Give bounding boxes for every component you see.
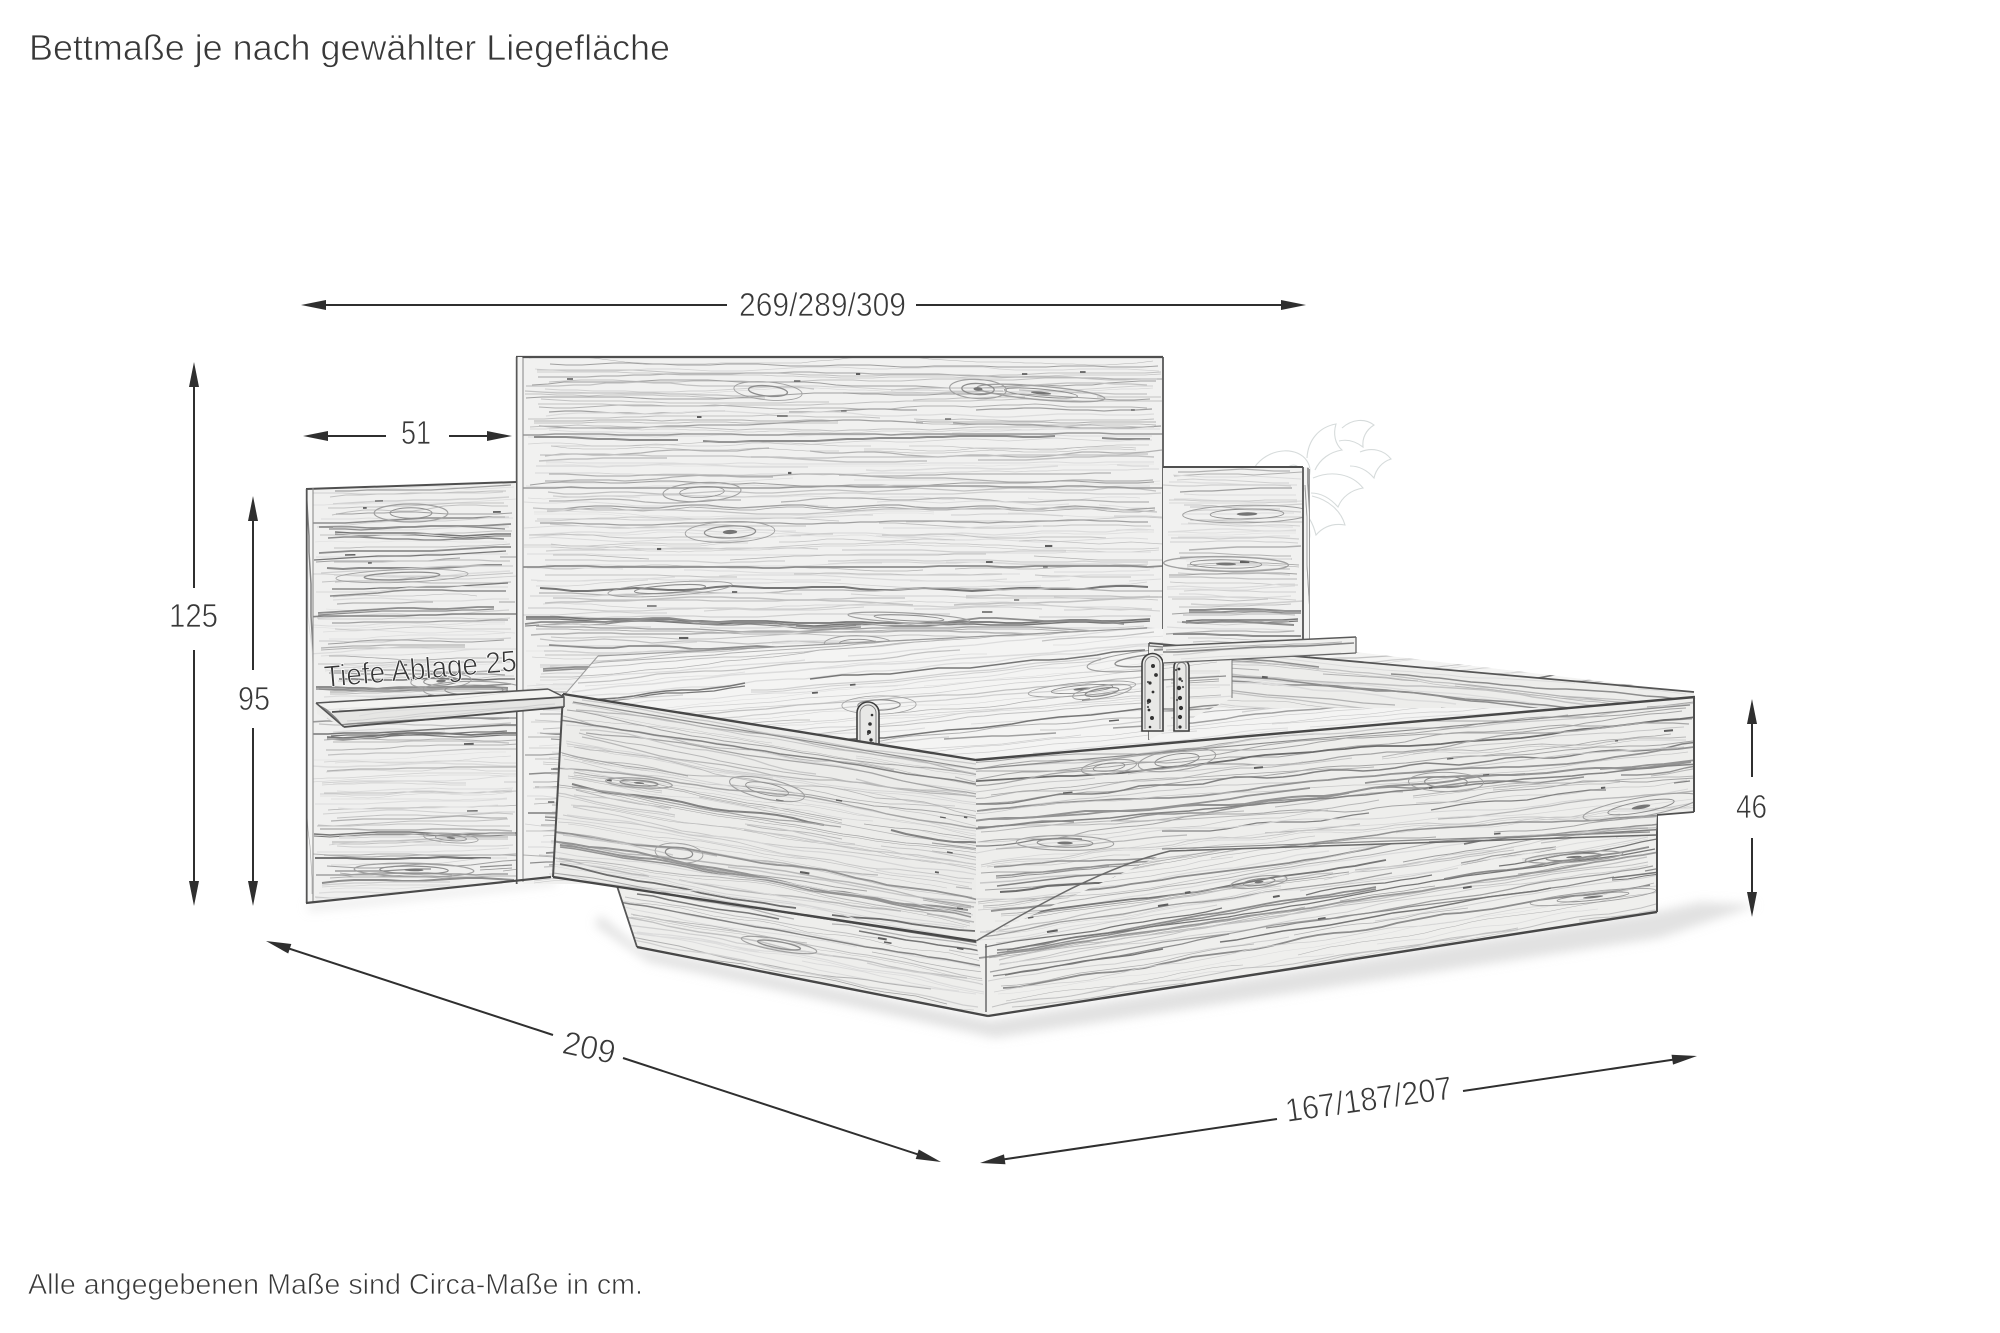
svg-text:46: 46 — [1736, 788, 1767, 825]
svg-text:Bettmaße je nach gewählter Lie: Bettmaße je nach gewählter Liegefläche — [29, 27, 670, 68]
svg-text:51: 51 — [401, 414, 431, 451]
svg-text:Alle angegebenen Maße sind Cir: Alle angegebenen Maße sind Circa-Maße in… — [28, 1269, 643, 1301]
svg-text:269/289/309: 269/289/309 — [739, 286, 906, 323]
svg-text:125: 125 — [169, 597, 218, 634]
svg-text:95: 95 — [238, 680, 270, 717]
